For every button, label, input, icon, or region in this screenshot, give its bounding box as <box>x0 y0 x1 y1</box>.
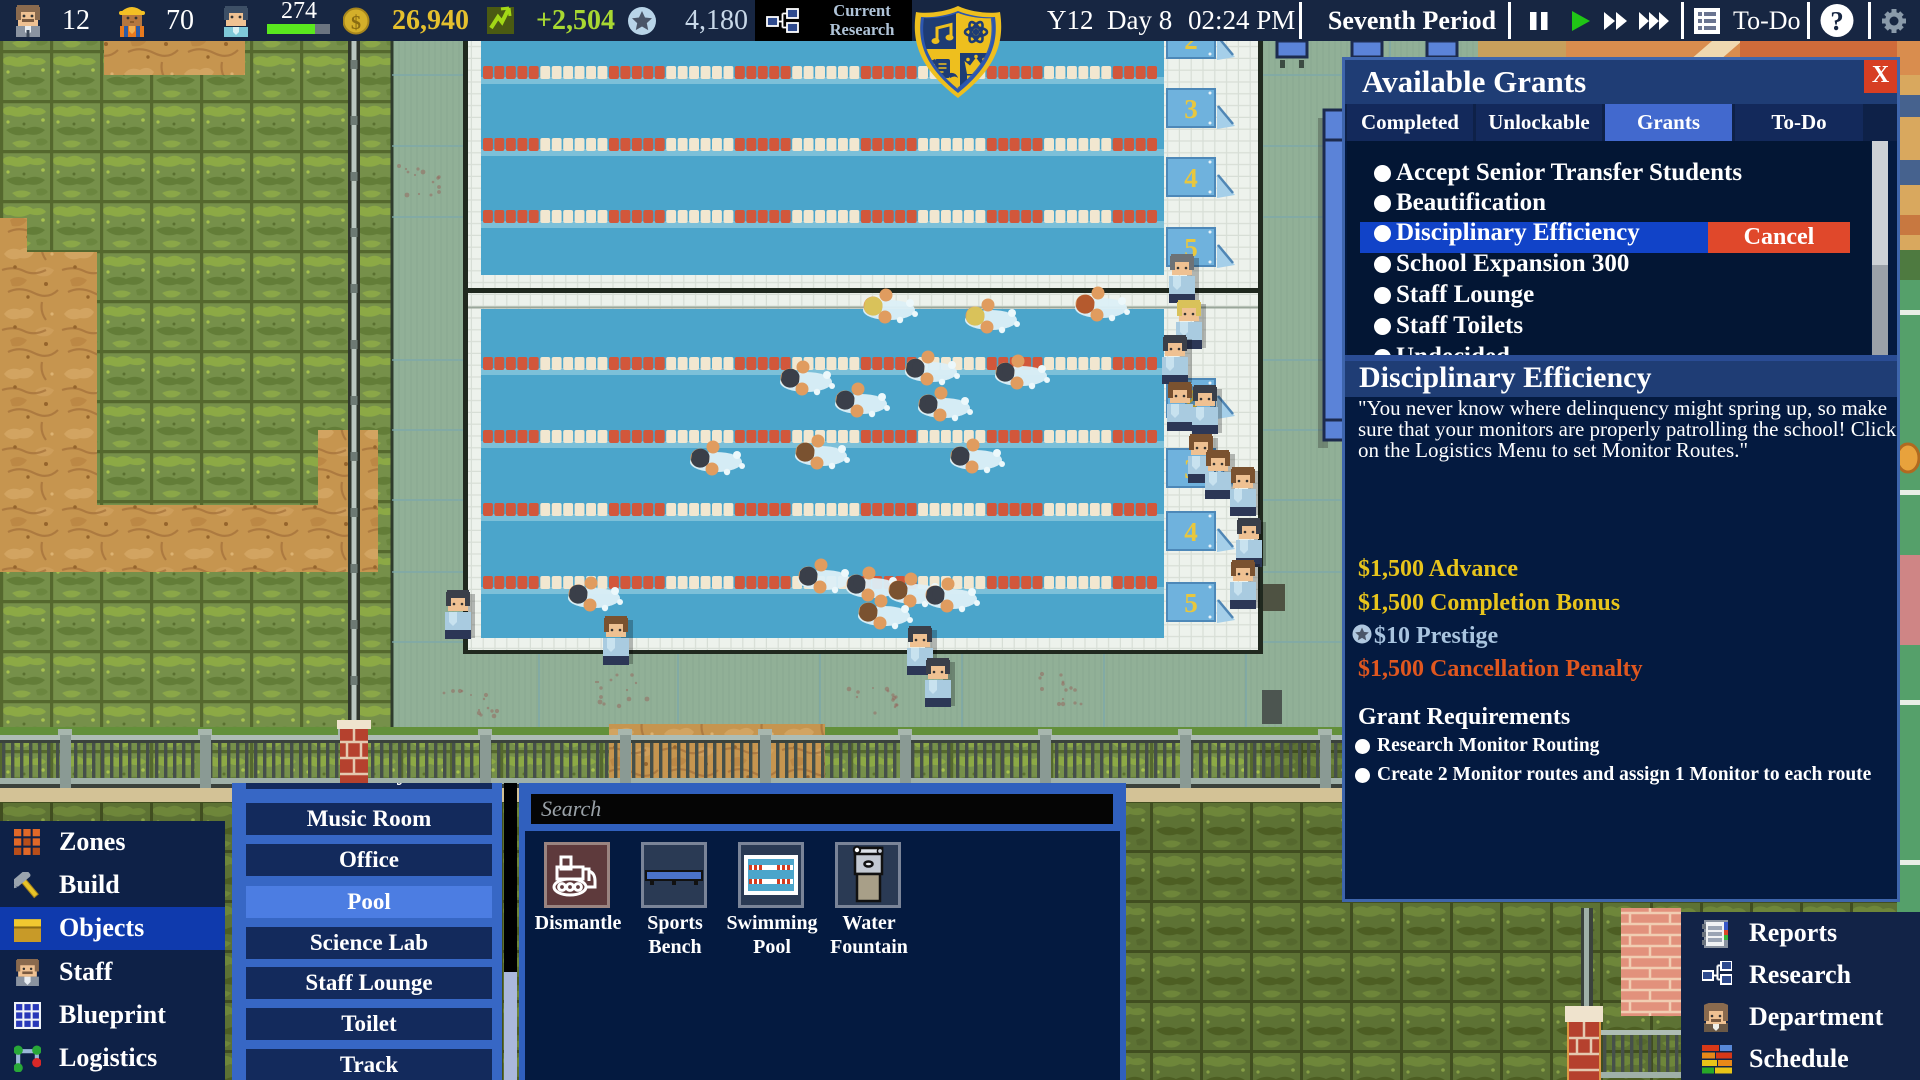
svg-text:$: $ <box>351 12 361 34</box>
svg-text:?: ? <box>1830 6 1844 36</box>
svg-text:4: 4 <box>1184 517 1198 547</box>
svg-text:3: 3 <box>1184 94 1198 124</box>
svg-text:4: 4 <box>1184 163 1198 193</box>
svg-text:5: 5 <box>1184 588 1198 618</box>
